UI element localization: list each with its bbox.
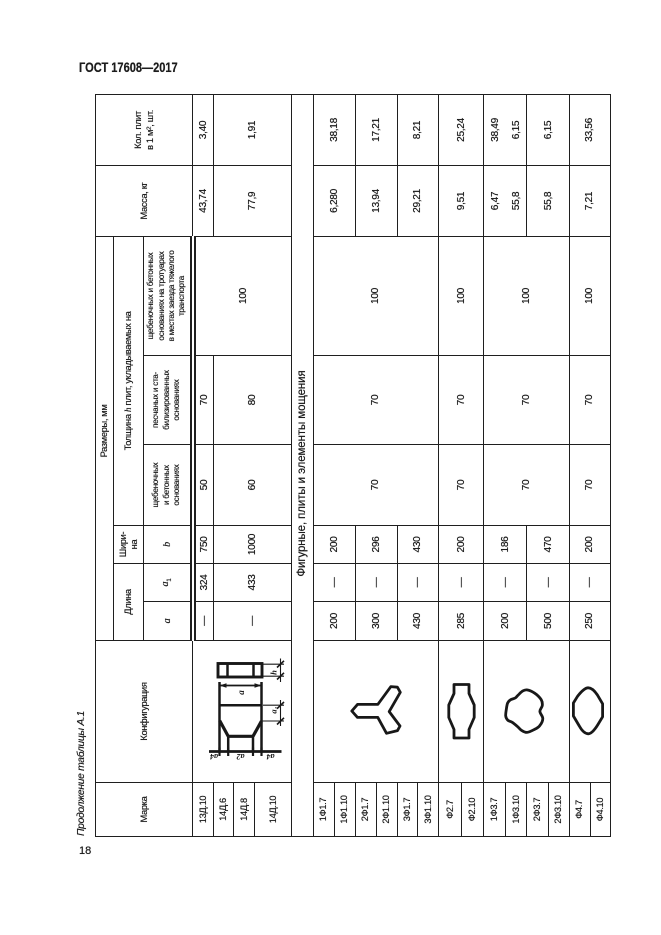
svg-text:а: а [236,690,246,695]
svg-text:h: h [269,670,279,675]
svg-text:а4: а4 [267,752,275,761]
svg-text:а2: а2 [237,752,245,761]
svg-text:а4: а4 [210,752,218,761]
svg-text:а₁: а₁ [269,706,279,713]
